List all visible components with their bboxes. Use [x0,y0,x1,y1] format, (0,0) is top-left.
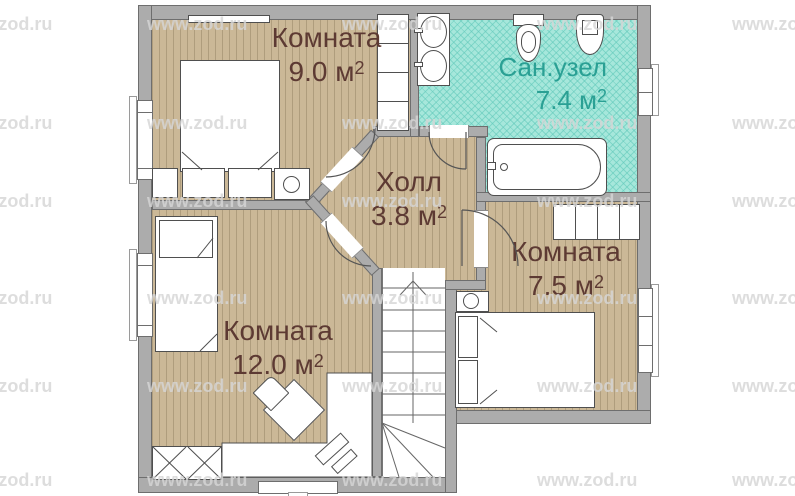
sink [420,16,447,48]
room-area-exp: 2 [597,86,607,106]
watermark: www.zod.ru [0,113,52,134]
wall-hall-stub [445,280,486,290]
stool [283,176,300,193]
wardrobe-divider [575,205,576,239]
bathtub-inner [493,144,601,190]
room-name: Комната [272,22,382,53]
bathroom-label: Сан.узел 7.4 м2 [467,53,607,115]
watermark: www.zod.ru [0,470,52,491]
pillow [228,168,272,198]
pillow [159,220,213,258]
pillow [458,316,478,358]
room-area: 9.0 м [289,56,355,87]
window-mullion [137,112,153,113]
hall-label: Холл 3.8 м2 [344,166,474,231]
exterior-wall-room75-bottom [447,410,651,424]
toilet-bowl [521,31,536,53]
staircase-area [382,268,445,477]
exterior-wall-left [138,5,152,493]
wall-room9-room12 [152,200,315,210]
faucet [414,62,423,67]
lamp [463,293,479,309]
room-12-label: Комната 12.0 м2 [200,315,356,380]
watermark: www.zod.ru [732,14,795,35]
room-area-exp: 2 [314,351,324,371]
watermark: www.zod.ru [0,376,52,397]
watermark: www.zod.ru [0,288,52,309]
room-name: Комната [511,236,621,267]
window-mullion [137,168,153,169]
room-area: 7.5 м [528,270,594,301]
bidet-bowl [582,20,598,35]
watermark: www.zod.ru [732,288,795,309]
watermark: www.zod.ru [732,191,795,212]
floor-plan: Комната 9.0 м2 Сан.узел 7.4 м2 Холл 3.8 … [0,0,795,496]
wardrobe-divider [597,205,598,239]
watermark: www.zod.ru [537,470,637,491]
room-name: Сан.узел [498,52,607,82]
closet-shelf [378,101,408,102]
room-area-exp: 2 [594,272,604,292]
room-area: 12.0 м [232,349,314,380]
pillow [458,360,478,404]
window-sill-left-1 [129,96,137,184]
room-9-label: Комната 9.0 м2 [244,22,409,87]
window-mullion [638,316,653,317]
room-name: Комната [223,315,333,346]
wardrobe-divider [619,205,620,239]
sink [420,50,447,82]
watermark: www.zod.ru [732,470,795,491]
watermark: www.zod.ru [0,191,52,212]
faucet [414,28,423,33]
door-opening-bathroom [429,125,469,138]
room-area: 7.4 м [536,85,597,115]
window-mullion [638,345,653,346]
window-mullion [638,92,653,93]
room-name: Холл [376,166,442,197]
watermark: www.zod.ru [732,113,795,134]
room-7-5-label: Комната 7.5 м2 [486,236,646,301]
window-sill-left-2 [129,249,137,341]
window-sill-bottom [288,492,308,496]
nightstand [152,168,178,198]
watermark: www.zod.ru [0,14,52,35]
window-mullion [137,265,153,266]
wall-stairs-left [372,268,382,477]
room-area: 3.8 м [371,200,437,231]
wardrobe-room12 [152,446,222,480]
room-area-exp: 2 [354,58,364,78]
watermark: www.zod.ru [732,376,795,397]
window-mullion [137,325,153,326]
pillow [182,168,225,198]
room-area-exp: 2 [437,202,447,222]
bathtub-faucet [487,162,496,170]
